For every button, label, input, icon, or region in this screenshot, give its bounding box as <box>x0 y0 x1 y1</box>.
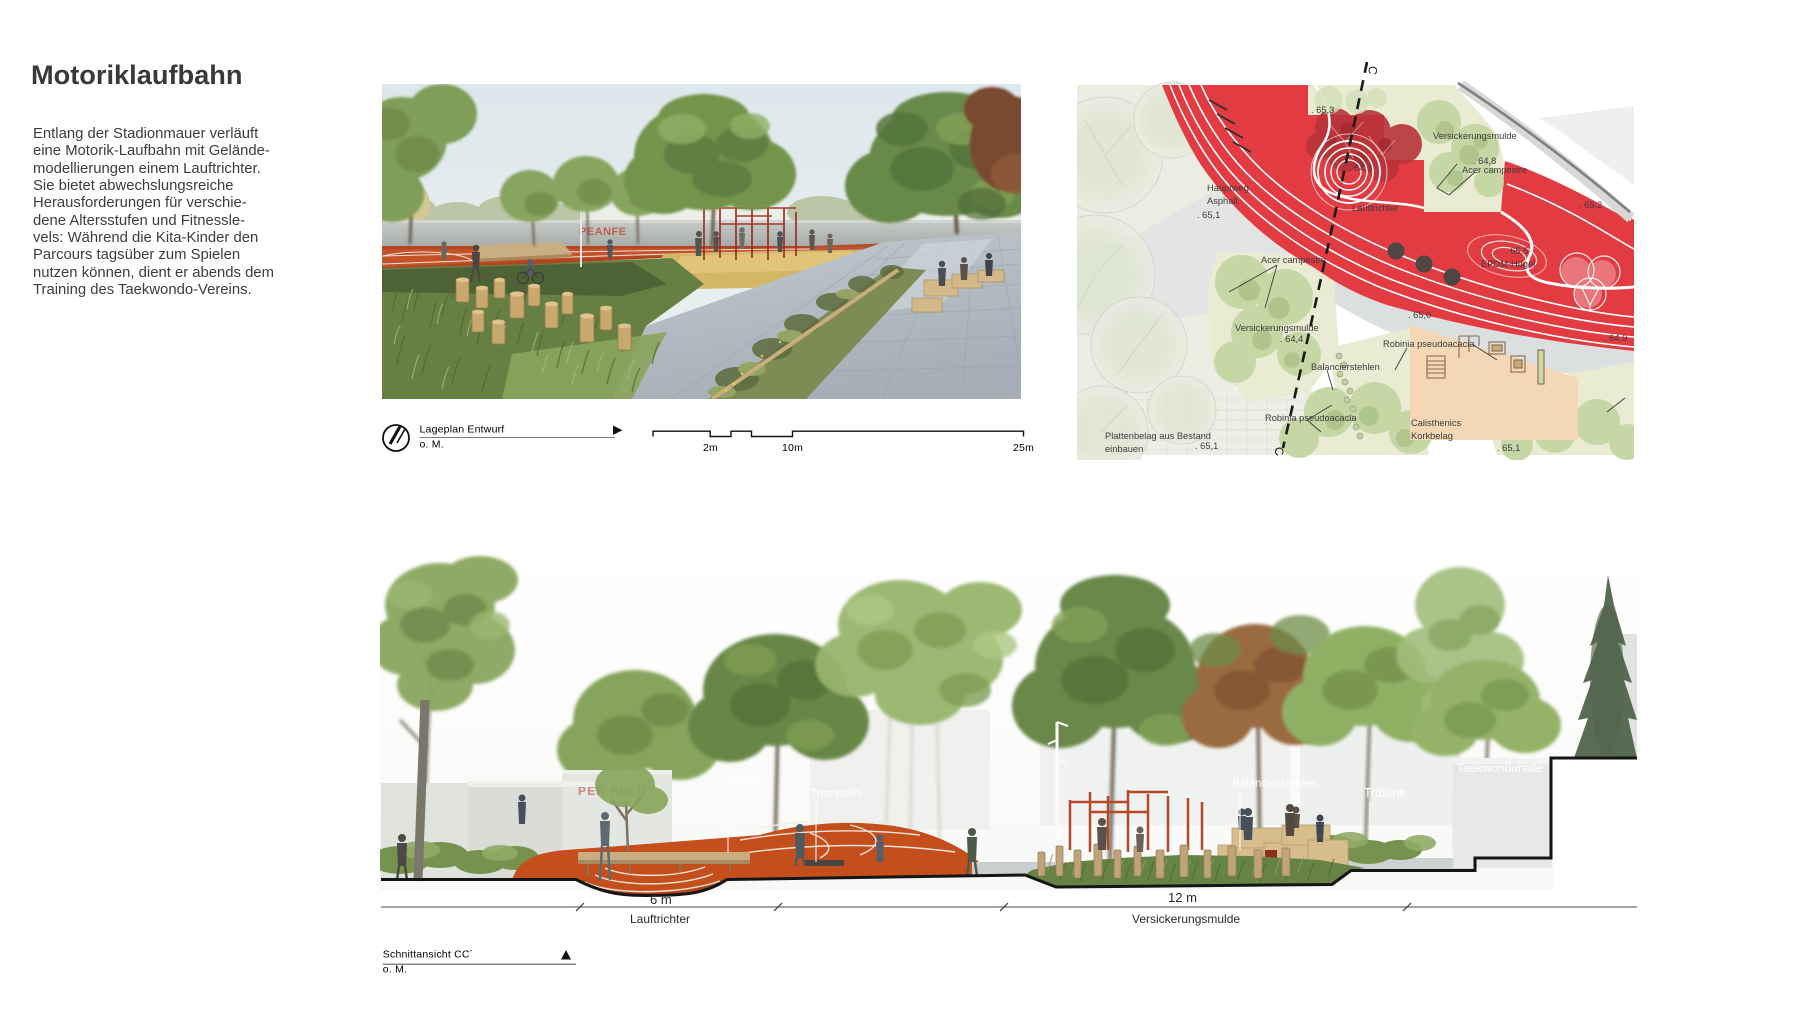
svg-text:Hauptweg: Hauptweg <box>1207 183 1249 193</box>
svg-text:Versickerungsmulde: Versickerungsmulde <box>1132 912 1240 926</box>
svg-text:6 m: 6 m <box>650 892 672 907</box>
svg-text:Balancierstehlen: Balancierstehlen <box>1232 778 1317 790</box>
svg-text:Acer campestre: Acer campestre <box>1261 255 1326 265</box>
svg-text:. 65,5: . 65,5 <box>1505 246 1528 256</box>
svg-text:. 65,1: . 65,1 <box>1497 443 1520 453</box>
svg-text:Robinia pseudoacacia: Robinia pseudoacacia <box>1383 339 1475 349</box>
svg-text:. 65,1: . 65,1 <box>1197 210 1220 220</box>
svg-text:C: C <box>1365 65 1380 76</box>
svg-text:o. M.: o. M. <box>420 439 444 451</box>
svg-text:Taekwondohalle: Taekwondohalle <box>1457 761 1543 775</box>
svg-text:Lageplan Entwurf: Lageplan Entwurf <box>420 424 505 436</box>
svg-text:Versickerungsmulde: Versickerungsmulde <box>1235 323 1319 333</box>
svg-text:o. M.: o. M. <box>383 964 407 976</box>
svg-text:Plattenbelag aus Bestand: Plattenbelag aus Bestand <box>1105 431 1211 441</box>
svg-text:. 64,4: . 64,4 <box>1280 334 1303 344</box>
svg-text:. 65,3: . 65,3 <box>1311 105 1334 115</box>
svg-text:25m: 25m <box>1013 442 1034 454</box>
svg-text:Calisthenics: Calisthenics <box>1411 418 1461 428</box>
svg-text:PEANFE: PEANFE <box>579 226 627 238</box>
svg-text:. 64,3: . 64,3 <box>1349 163 1372 173</box>
svg-text:EPDM-Hügel: EPDM-Hügel <box>1481 259 1535 269</box>
svg-text:Lauftrichter: Lauftrichter <box>1352 203 1399 213</box>
svg-text:C: C <box>1271 446 1286 457</box>
svg-text:. 65,2: . 65,2 <box>1579 200 1602 210</box>
svg-text:Schnittansicht CC´: Schnittansicht CC´ <box>383 949 474 961</box>
svg-text:einbauen: einbauen <box>1105 444 1143 454</box>
svg-text:Robinia pseudoacacia: Robinia pseudoacacia <box>1265 413 1357 423</box>
svg-text:Korkbelag: Korkbelag <box>1411 431 1453 441</box>
svg-text:Asphalt: Asphalt <box>1207 196 1238 206</box>
svg-text:Versickerungsmulde: Versickerungsmulde <box>1433 131 1517 141</box>
svg-text:Tribüne: Tribüne <box>1364 786 1406 800</box>
svg-text:Balancierstehlen: Balancierstehlen <box>1311 362 1380 372</box>
svg-text:. 65,1: . 65,1 <box>1195 441 1218 451</box>
svg-text:. 65,0: . 65,0 <box>1408 310 1431 320</box>
svg-text:10m: 10m <box>782 442 803 454</box>
svg-text:2m: 2m <box>703 442 718 454</box>
svg-text:Acer campestre: Acer campestre <box>1462 165 1527 175</box>
svg-text:Holzdeck: Holzdeck <box>720 774 768 786</box>
svg-text:. 64,9: . 64,9 <box>1604 333 1627 343</box>
svg-text:Trampolin: Trampolin <box>810 788 861 800</box>
svg-text:Lauftrichter: Lauftrichter <box>630 912 690 926</box>
svg-text:12 m: 12 m <box>1168 890 1197 905</box>
